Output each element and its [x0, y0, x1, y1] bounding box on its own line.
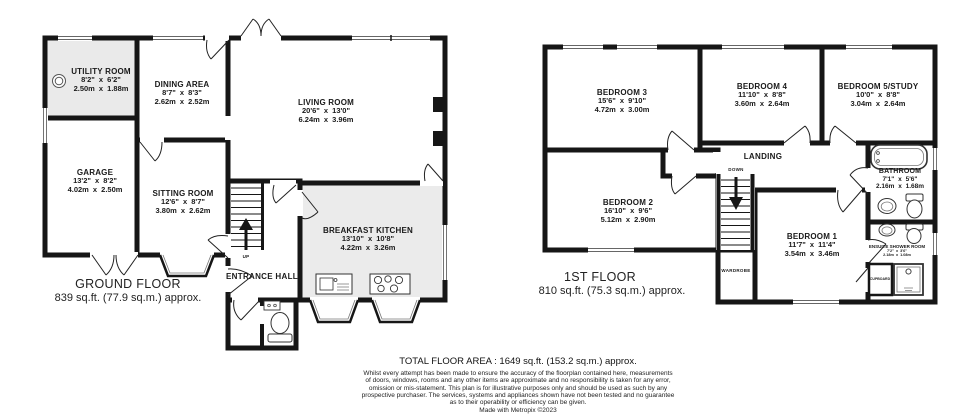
disclaimer-line: prospective purchaser. The services, sys…	[362, 392, 675, 399]
shower-icon	[894, 264, 923, 295]
first-floor-area: 810 sq.ft. (75.3 sq.m.) approx.	[539, 285, 686, 297]
room-label-bedroom3: BEDROOM 3 15'6" x 9'10" 4.72m x 3.00m	[595, 88, 650, 114]
floorplan-page: UTILITY ROOM 8'2" x 6'2" 2.50m x 1.88m D…	[0, 0, 980, 418]
landing-notch	[663, 150, 718, 176]
room-label-bedroom4: BEDROOM 4 11'10" x 8'8" 3.60m x 2.64m	[735, 82, 790, 108]
room-label-dining: DINING AREA 8'7" x 8'3" 2.62m x 2.52m	[155, 80, 210, 106]
room-label-garage: GARAGE 13'2" x 8'2" 4.02m x 2.50m	[68, 168, 123, 194]
corridor-opening	[713, 152, 723, 173]
room-label-bedroom1: BEDROOM 1 11'7" x 11'4" 3.54m x 3.46m	[785, 232, 840, 258]
washer-icon	[53, 75, 66, 88]
room-wardrobe	[718, 250, 755, 302]
bathroom-sink-icon	[878, 199, 896, 214]
total-floor-area: TOTAL FLOOR AREA : 1649 sq.ft. (153.2 sq…	[399, 356, 636, 367]
bathroom-toilet-icon	[906, 194, 923, 218]
first-floor-title: 1ST FLOOR	[564, 270, 636, 284]
disclaimer-line: omission or mis-statement. This plan is …	[369, 385, 667, 392]
label-down: DOWN	[728, 167, 743, 172]
room-label-kitchen: BREAKFAST KITCHEN 13'10" x 10'8" 4.22m x…	[323, 226, 413, 252]
label-wardrobe: WARDROBE	[721, 268, 750, 273]
ensuite-sink-icon	[879, 224, 895, 236]
room-label-ensuite: ENSUITE SHOWER ROOM 7'2" x 3'6" 2.18m x …	[869, 244, 925, 258]
ground-floor-title: GROUND FLOOR	[75, 277, 181, 291]
disclaimer-line: of doors, windows, rooms and any other i…	[365, 377, 670, 384]
room-label-bedroom2: BEDROOM 2 16'10" x 9'6" 5.12m x 2.90m	[601, 198, 656, 224]
bath-icon	[871, 145, 927, 169]
room-label-living: LIVING ROOM 20'6" x 13'0" 6.24m x 3.96m	[298, 98, 354, 124]
room-label-bedroom5: BEDROOM 5/STUDY 10'0" x 8'8" 3.04m x 2.6…	[838, 82, 919, 108]
wc-basin-icon	[264, 301, 280, 310]
ground-floor-area: 839 sq.ft. (77.9 sq.m.) approx.	[55, 292, 202, 304]
room-label-sitting: SITTING ROOM 12'6" x 8'7" 3.80m x 2.62m	[152, 189, 213, 215]
label-up: UP	[243, 254, 250, 259]
disclaimer-line: Whilst every attempt has been made to en…	[363, 370, 672, 377]
kitchen-sink-icon	[316, 274, 352, 294]
disclaimer-line: as to their operability or efficiency ca…	[450, 399, 587, 406]
hob-icon	[370, 274, 410, 294]
label-cupboard: CUPBOARD	[870, 277, 890, 281]
label-landing: LANDING	[744, 152, 783, 161]
room-label-utility: UTILITY ROOM 8'2" x 6'2" 2.50m x 1.88m	[71, 67, 131, 93]
metropix-credit: Made with Metropix ©2023	[479, 407, 556, 414]
label-entrance-hall: ENTRANCE HALL	[226, 272, 298, 281]
room-label-bathroom: BATHROOM 7'1" x 5'6" 2.16m x 1.68m	[876, 168, 924, 190]
